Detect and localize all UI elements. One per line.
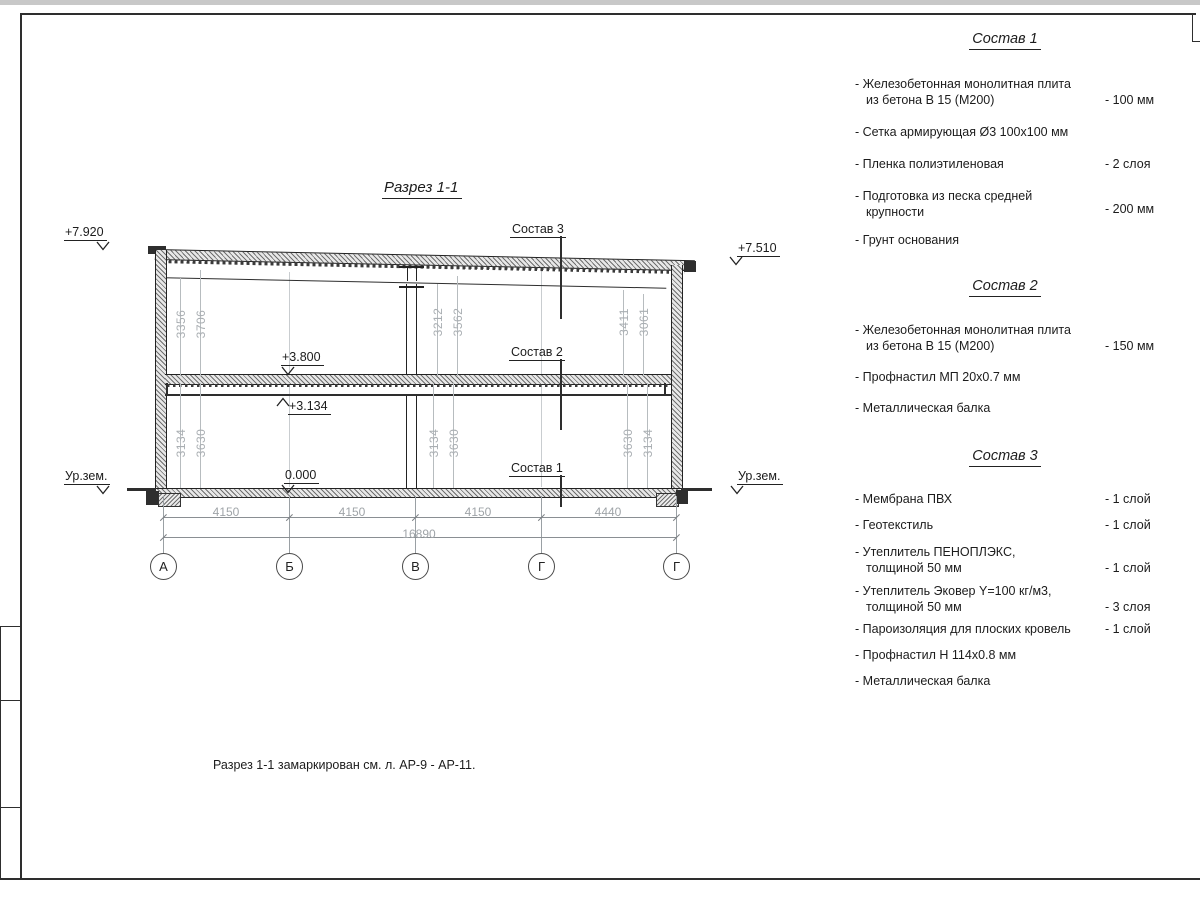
leader-sostav3: Состав 3	[510, 222, 566, 238]
comp1-title: Состав 1	[855, 31, 1155, 47]
ground-level-label-left: Ур.зем.	[64, 469, 110, 485]
frame-left-line	[20, 13, 22, 880]
comp2-item: - Металлическая балка	[855, 401, 1167, 417]
vdim-up-right-inner: 3411	[617, 308, 631, 336]
vdim-up-right-outer: 3061	[637, 308, 651, 337]
vdim-up-left-inner: 3356	[174, 310, 188, 339]
comp-item-line: - Утеплитель Эковер Y=100 кг/м3,	[855, 584, 1167, 600]
comp1-item: - Грунт основания	[855, 233, 1167, 249]
frame-top-line	[21, 13, 1196, 15]
axis-bubble-g2: Г	[663, 553, 690, 580]
dim-span-a-b: 4150	[196, 505, 256, 519]
margin-stamp-vline	[0, 626, 1, 880]
floor2-deck-profile	[167, 384, 669, 387]
ground-slab-hatch	[155, 488, 681, 498]
comp1-title-text: Состав 1	[969, 31, 1040, 50]
drawing-sheet: Разрез 1-1 +7.920 +7.510 +3.800 +3.134 0…	[0, 0, 1200, 900]
margin-stamp-line2	[0, 700, 21, 701]
vdim-low-mid-inner: 3134	[427, 429, 441, 458]
column-middle-upper	[406, 284, 417, 375]
axis-ext-line	[289, 496, 290, 553]
ground-level-label-right: Ур.зем.	[737, 469, 783, 485]
roof-right-cap	[684, 261, 696, 272]
axis-bubble-b: Б	[276, 553, 303, 580]
roof-assembly	[154, 249, 695, 305]
floor2-beam-stub-right	[664, 383, 666, 395]
vdim-up-mid-inner: 3212	[431, 308, 445, 337]
comp-item-value: - 1 слой	[1105, 561, 1151, 577]
comp3-item: - Утеплитель Эковер Y=100 кг/м3, толщино…	[855, 584, 1167, 615]
footing-right-block	[676, 490, 688, 504]
floor2-beam-bottom-line	[165, 394, 671, 396]
section-title: Разрез 1-1	[382, 179, 462, 199]
scan-edge-strip	[0, 0, 1200, 5]
comp1-item: - Пленка полиэтиленовая - 2 слоя	[855, 157, 1167, 173]
comp-item-line: - Сетка армирующая Ø3 100х100 мм	[855, 125, 1167, 141]
comp3-item: - Пароизоляция для плоских кровель - 1 с…	[855, 622, 1167, 638]
footing-left-hatch	[158, 493, 181, 507]
elevation-arrow-icon	[96, 241, 110, 251]
roof-ibeam	[399, 266, 424, 288]
axis-bubble-g1: Г	[528, 553, 555, 580]
comp3-item: - Мембрана ПВХ - 1 слой	[855, 492, 1167, 508]
comp-item-value: - 2 слоя	[1105, 157, 1150, 173]
frame-bottom-line	[0, 878, 1200, 880]
floor2-beam-stub-left	[166, 383, 168, 395]
leader-sostav2: Состав 2	[509, 345, 565, 361]
comp-item-line: - Железобетонная монолитная плита	[855, 323, 1167, 339]
comp1-item: - Подготовка из песка средней крупности …	[855, 189, 1167, 220]
axis-ext-line	[676, 496, 677, 553]
axis-bubble-v: В	[402, 553, 429, 580]
comp3-item: - Металлическая балка	[855, 674, 1167, 690]
frame-corner-box-hline	[1192, 41, 1200, 42]
drawing-note: Разрез 1-1 замаркирован см. л. АР-9 - АР…	[213, 758, 475, 772]
comp-item-value: - 200 мм	[1105, 202, 1154, 218]
comp-item-line: - Профнастил МП 20х0.7 мм	[855, 370, 1167, 386]
comp3-item: - Геотекстиль - 1 слой	[855, 518, 1167, 534]
leader-sostav3-line	[560, 236, 562, 319]
vdim-up-mid-outer: 3562	[451, 308, 465, 337]
comp3-title: Состав 3	[855, 448, 1155, 464]
comp-item-line: - Железобетонная монолитная плита	[855, 77, 1167, 93]
dim-span-g-g: 4440	[578, 505, 638, 519]
comp1-item: - Железобетонная монолитная плита из бет…	[855, 77, 1167, 108]
elevation-top-left: +7.920	[64, 225, 107, 241]
comp3-title-text: Состав 3	[969, 448, 1040, 467]
elevation-top-right: +7.510	[737, 241, 780, 257]
dim-span-b-v: 4150	[322, 505, 382, 519]
frame-corner-box-vline	[1192, 13, 1193, 42]
comp2-title-text: Состав 2	[969, 278, 1040, 297]
vdim-low-left-inner: 3134	[174, 429, 188, 458]
axis-ext-line	[415, 496, 416, 553]
leader-sostav1: Состав 1	[509, 461, 565, 477]
comp-item-line: - Профнастил Н 114х0.8 мм	[855, 648, 1167, 664]
comp3-item: - Утеплитель ПЕНОПЛЭКС, толщиной 50 мм -…	[855, 545, 1167, 576]
column-middle-lower	[406, 394, 417, 488]
elevation-zero: 0.000	[284, 468, 319, 484]
vdim-low-right-inner: 3630	[621, 429, 635, 458]
leader-sostav2-line	[560, 359, 562, 430]
elevation-arrow-icon	[281, 366, 295, 376]
margin-stamp-line1	[0, 626, 21, 627]
comp-item-value: - 3 слоя	[1105, 600, 1150, 616]
dim-span-v-g: 4150	[448, 505, 508, 519]
comp-item-line: - Утеплитель ПЕНОПЛЭКС,	[855, 545, 1167, 561]
vdim-low-mid-outer: 3630	[447, 429, 461, 458]
comp-item-value: - 100 мм	[1105, 93, 1154, 109]
comp-item-line: - Металлическая балка	[855, 401, 1167, 417]
comp-item-value: - 1 слой	[1105, 492, 1151, 508]
comp2-item: - Профнастил МП 20х0.7 мм	[855, 370, 1167, 386]
comp2-title: Состав 2	[855, 278, 1155, 294]
comp3-item: - Профнастил Н 114х0.8 мм	[855, 648, 1167, 664]
roof-ibeam-web	[407, 268, 417, 281]
elevation-beam: +3.134	[288, 399, 331, 415]
comp-item-value: - 1 слой	[1105, 622, 1151, 638]
comp-item-value: - 1 слой	[1105, 518, 1151, 534]
comp-item-line: - Грунт основания	[855, 233, 1167, 249]
axis-ext-line	[163, 496, 164, 553]
elevation-arrow-icon	[96, 485, 110, 495]
elevation-arrow-icon	[729, 256, 743, 266]
vdim-up-left-outer: 3706	[194, 310, 208, 339]
vdim-low-right-outer: 3134	[641, 429, 655, 458]
elevation-floor2: +3.800	[281, 350, 324, 366]
comp2-item: - Железобетонная монолитная плита из бет…	[855, 323, 1167, 354]
comp-item-line: - Металлическая балка	[855, 674, 1167, 690]
axis-ext-line	[541, 496, 542, 553]
axis-bubble-a: А	[150, 553, 177, 580]
wall-left	[155, 250, 167, 491]
elevation-arrow-icon	[281, 484, 295, 494]
wall-right	[671, 265, 683, 491]
leader-sostav1-line	[560, 475, 562, 507]
vdim-low-left-outer: 3630	[194, 429, 208, 458]
dim-total: 16890	[389, 527, 449, 541]
margin-stamp-line3	[0, 807, 21, 808]
comp-item-value: - 150 мм	[1105, 339, 1154, 355]
comp1-item: - Сетка армирующая Ø3 100х100 мм	[855, 125, 1167, 141]
elevation-arrow-icon	[730, 485, 744, 495]
